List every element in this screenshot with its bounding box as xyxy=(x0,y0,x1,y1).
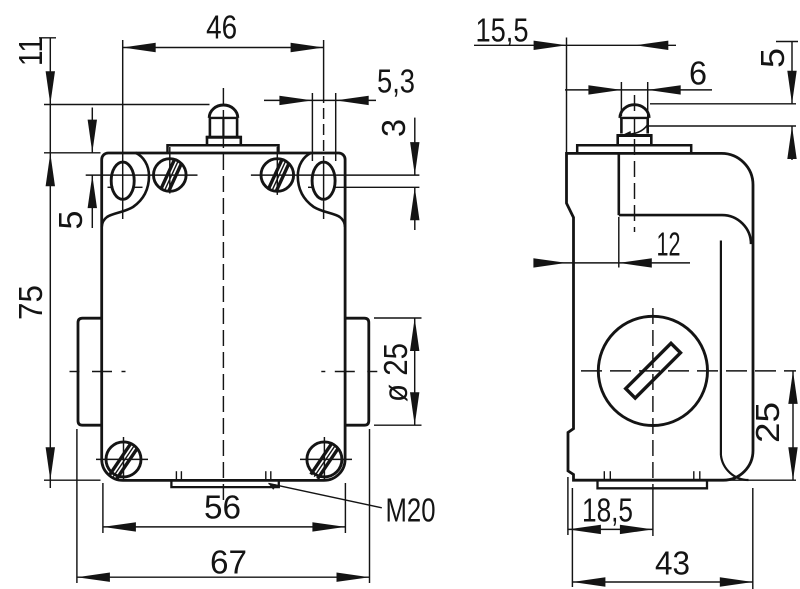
svg-text:5: 5 xyxy=(52,211,89,230)
svg-text:5,3: 5,3 xyxy=(377,63,415,100)
svg-text:75: 75 xyxy=(12,285,49,320)
svg-text:M20: M20 xyxy=(386,492,436,529)
svg-text:18,5: 18,5 xyxy=(582,492,633,529)
svg-text:46: 46 xyxy=(206,9,237,46)
svg-text:56: 56 xyxy=(204,489,241,526)
svg-text:67: 67 xyxy=(210,544,247,581)
svg-text:6: 6 xyxy=(689,55,707,92)
svg-text:5: 5 xyxy=(754,48,791,68)
svg-text:43: 43 xyxy=(655,545,690,582)
svg-text:25: 25 xyxy=(749,402,786,443)
svg-text:12: 12 xyxy=(657,226,681,263)
svg-text:3: 3 xyxy=(375,119,412,137)
svg-text:11: 11 xyxy=(12,37,49,66)
svg-text:ø 25: ø 25 xyxy=(377,343,414,402)
svg-text:15,5: 15,5 xyxy=(476,12,529,49)
